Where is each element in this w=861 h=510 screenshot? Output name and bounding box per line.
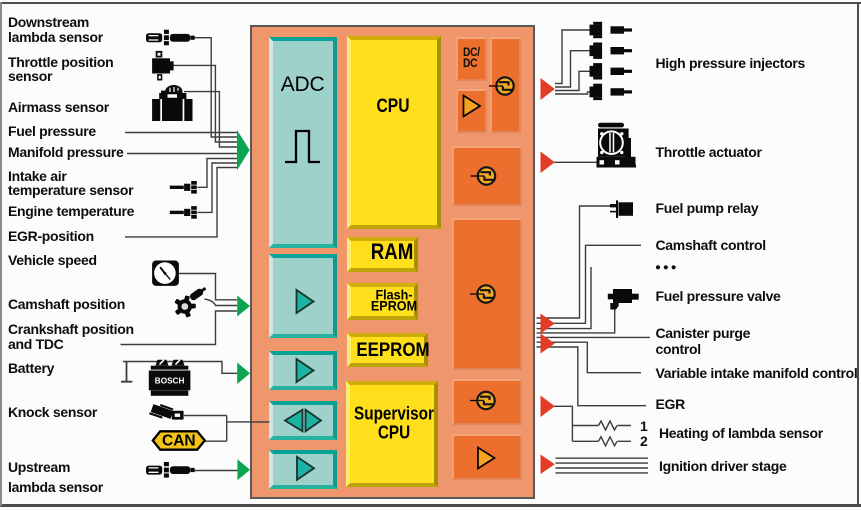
svg-text:BOSCH: BOSCH: [155, 377, 185, 386]
svg-text:CAN: CAN: [162, 433, 196, 450]
